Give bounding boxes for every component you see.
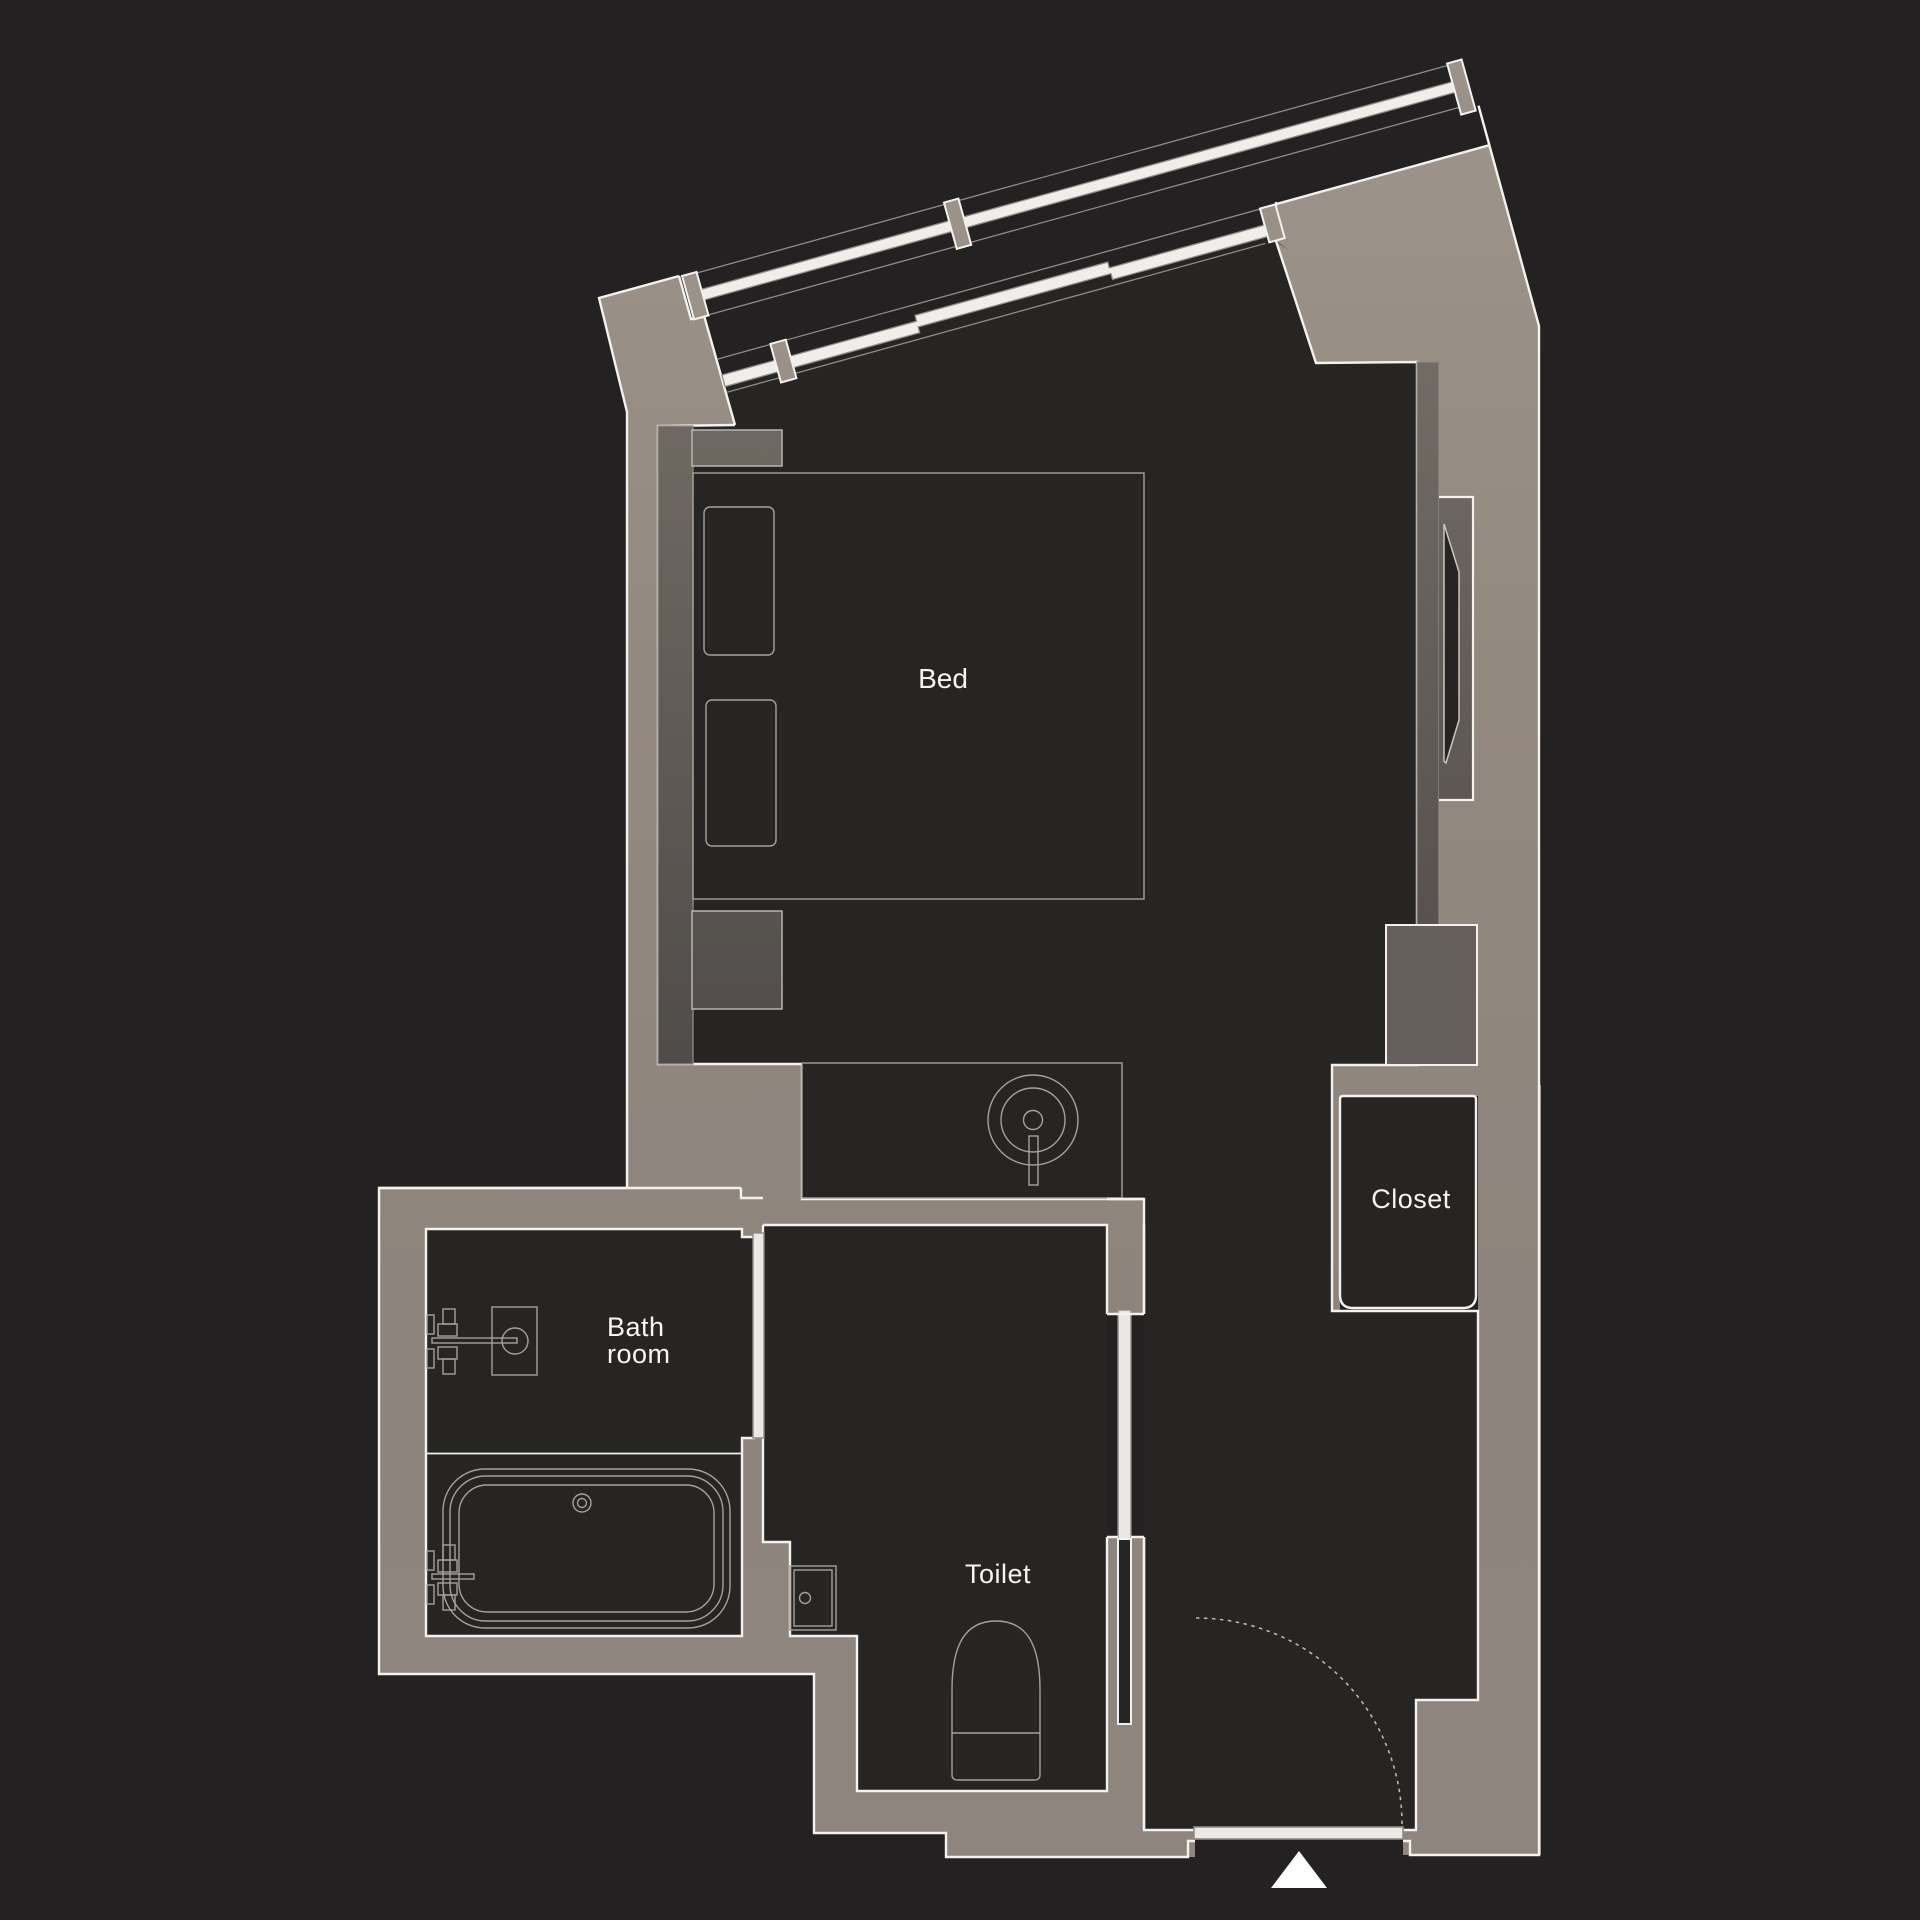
svg-text:room: room (607, 1339, 671, 1369)
svg-text:Bed: Bed (918, 663, 968, 694)
svg-text:Toilet: Toilet (965, 1559, 1031, 1589)
svg-text:Closet: Closet (1371, 1184, 1451, 1214)
svg-text:Bath: Bath (607, 1312, 665, 1342)
